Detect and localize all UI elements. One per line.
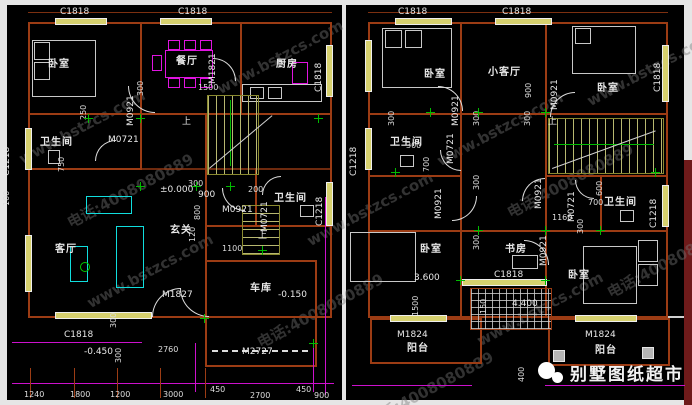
dim-label: 900 xyxy=(198,191,215,200)
wall xyxy=(545,113,547,232)
plant xyxy=(80,262,90,272)
window xyxy=(326,182,333,226)
dim-label: 100 xyxy=(3,188,11,206)
column-marker xyxy=(642,347,654,359)
toilet xyxy=(300,205,314,217)
window xyxy=(25,128,32,170)
wall xyxy=(545,22,547,115)
wall xyxy=(545,175,668,177)
window-label: C1218 xyxy=(3,136,12,176)
window xyxy=(395,18,452,25)
dim-label: 2760 xyxy=(158,346,178,354)
level-label: 4.400 xyxy=(512,300,538,309)
window-label: C1818 xyxy=(315,52,324,92)
dim-label: 900 xyxy=(314,392,329,400)
dim-label: 300 xyxy=(406,142,421,150)
window xyxy=(495,18,552,25)
window xyxy=(575,315,637,322)
window-label: C1818 xyxy=(60,8,89,17)
window-label: C1818 xyxy=(502,8,531,17)
window-label: C1218 xyxy=(350,136,359,176)
window-label: C1218 xyxy=(316,186,325,226)
dim-label: 300 xyxy=(137,76,145,96)
axis-tick xyxy=(474,108,483,117)
dimension-line xyxy=(12,383,334,384)
level-label: -0.150 xyxy=(278,291,307,300)
axis-tick xyxy=(391,168,400,177)
dim-label: 200 xyxy=(248,186,263,194)
door-label: M1824 xyxy=(585,331,616,340)
door-label: M1824 xyxy=(397,331,428,340)
staircase xyxy=(548,118,664,174)
wall xyxy=(368,113,668,115)
cabinet xyxy=(86,196,132,214)
dim-label: 300 xyxy=(110,310,118,328)
room-label-bathroom: 卫生间 xyxy=(274,194,307,204)
dim-label: 300 xyxy=(577,216,585,234)
axis-tick xyxy=(541,108,550,117)
frame-right xyxy=(684,0,692,160)
room-label-study: 书房 xyxy=(505,245,527,255)
dim-label: 800 xyxy=(194,200,202,220)
dimension-line xyxy=(12,342,142,343)
dim-label: 300 xyxy=(524,108,532,126)
frame-bottom xyxy=(0,400,692,405)
bed-pillow xyxy=(405,30,422,48)
axis-tick xyxy=(136,114,145,123)
window xyxy=(365,128,372,170)
room-label-garage: 车库 xyxy=(250,284,272,294)
stairs-up-label: 上 xyxy=(258,232,267,241)
window-label: C1218 xyxy=(650,188,659,228)
stair-arrow xyxy=(230,100,231,166)
wall xyxy=(368,175,462,177)
axis-tick xyxy=(314,114,323,123)
room-label-small-living: 小客厅 xyxy=(488,68,521,78)
dim-label: 1240 xyxy=(24,391,44,399)
dimension-line xyxy=(195,343,196,392)
window-label: C1818 xyxy=(178,8,207,17)
room-label-bathroom: 卫生间 xyxy=(604,198,637,208)
window-label: C1818 xyxy=(64,331,93,340)
right-red-bar xyxy=(684,160,692,405)
balcony-wall xyxy=(370,318,482,364)
axis-tick xyxy=(651,168,660,177)
door-label: M0721 xyxy=(447,130,456,164)
dimension-line xyxy=(352,385,472,386)
axis-tick xyxy=(456,276,465,285)
window xyxy=(462,279,547,286)
dim-label: 1800 xyxy=(70,391,90,399)
room-label-bedroom: 卧室 xyxy=(424,70,446,80)
dim-label: 1160 xyxy=(552,214,572,222)
window xyxy=(55,18,107,25)
wall xyxy=(28,168,332,170)
axis-tick xyxy=(136,182,145,191)
dim-label: 300 xyxy=(473,172,481,190)
window xyxy=(662,185,669,227)
axis-tick xyxy=(596,226,605,235)
window xyxy=(25,235,32,292)
door-label: M1827 xyxy=(162,291,193,300)
sofa xyxy=(116,226,144,288)
room-label-balcony: 阳台 xyxy=(407,344,429,354)
dining-chair xyxy=(184,78,196,88)
window xyxy=(160,18,212,25)
wall xyxy=(28,113,332,115)
window xyxy=(326,45,333,97)
room-label-kitchen: 厨房 xyxy=(276,60,298,70)
door-label: M0721 xyxy=(108,136,139,145)
dim-label: 300 xyxy=(115,345,123,363)
axis-tick xyxy=(84,114,93,123)
window-label: C1818 xyxy=(654,52,663,92)
wechat-icon xyxy=(538,362,555,379)
toilet xyxy=(620,210,634,222)
dim-label: 150 xyxy=(480,294,488,314)
room-label-dining: 餐厅 xyxy=(176,57,198,67)
room-label-bedroom: 卧室 xyxy=(420,245,442,255)
dim-label: 300 xyxy=(388,108,396,126)
room-label-living: 客厅 xyxy=(55,245,77,255)
dim-label: 750 xyxy=(58,152,66,172)
dim-label: 1100 xyxy=(222,245,242,253)
window-label: C1818 xyxy=(494,271,523,280)
door-label: M0921 xyxy=(435,185,444,219)
door-label: M0921 xyxy=(551,76,560,110)
window xyxy=(662,45,669,102)
level-label: -0.450 xyxy=(84,348,113,357)
wall xyxy=(460,230,462,318)
kitchen-sink xyxy=(268,87,282,99)
axis-tick xyxy=(474,226,483,235)
plan-divider-line xyxy=(342,0,346,405)
dim-label: 600 xyxy=(596,176,604,196)
bed-pillow xyxy=(575,28,591,44)
bed xyxy=(350,232,416,282)
bed-pillow xyxy=(34,42,50,60)
window xyxy=(390,315,447,322)
door-label: M0921 xyxy=(452,92,461,126)
door-label: M0921 xyxy=(222,206,253,215)
room-label-bedroom: 卧室 xyxy=(568,271,590,281)
room-label-balcony: 阳台 xyxy=(595,346,617,356)
toilet xyxy=(400,155,414,167)
dim-label: 900 xyxy=(525,78,533,98)
axis-tick xyxy=(541,226,550,235)
dining-chair xyxy=(168,40,180,50)
level-label: 3.600 xyxy=(414,274,440,283)
dimension-line xyxy=(325,197,326,395)
stair-arrow xyxy=(554,144,654,145)
dim-label: 1200 xyxy=(110,391,130,399)
dimension-line xyxy=(313,343,314,392)
dining-chair xyxy=(184,40,196,50)
wardrobe xyxy=(638,264,658,286)
bed-pillow xyxy=(385,30,402,48)
stairs-up-label: 上 xyxy=(548,118,557,127)
dim-label: 700 xyxy=(423,152,431,172)
axis-tick xyxy=(309,339,318,348)
door-label: M1821 xyxy=(209,48,218,84)
dimension-line xyxy=(545,385,685,386)
dim-label: 1500 xyxy=(198,84,218,92)
window xyxy=(55,312,152,319)
room-label-bedroom: 卧室 xyxy=(597,84,619,94)
column-marker xyxy=(553,350,565,362)
axis-tick xyxy=(200,314,209,323)
axis-tick xyxy=(258,246,267,255)
dim-label: 2700 xyxy=(250,392,270,400)
door-label: M0721 xyxy=(261,198,270,232)
brand-name: 别墅图纸超市 xyxy=(570,360,684,385)
dim-label: 3000 xyxy=(163,391,183,399)
room-label-bedroom: 卧室 xyxy=(48,60,70,70)
dim-label: 450 xyxy=(210,386,225,394)
axis-tick xyxy=(192,182,201,191)
axis-tick xyxy=(226,182,235,191)
dim-label: 1500 xyxy=(412,294,420,316)
wardrobe xyxy=(638,240,658,262)
dim-label: 700 xyxy=(588,199,603,207)
cad-floorplan-image: www.bstzcs.com www.bstzcs.com www.bstzcs… xyxy=(0,0,692,405)
axis-tick xyxy=(426,108,435,117)
window-label: C1818 xyxy=(398,8,427,17)
window xyxy=(365,40,372,92)
dimension-gridline xyxy=(160,368,161,398)
frame-top xyxy=(0,0,692,5)
door-label: M0921 xyxy=(535,175,544,209)
dining-chair xyxy=(152,55,162,71)
room-label-bathroom: 卫生间 xyxy=(40,138,73,148)
stairs-up-label: 上 xyxy=(182,118,191,127)
dining-chair xyxy=(168,78,180,88)
dim-label: 120 xyxy=(189,224,197,242)
dimension-gridline xyxy=(205,368,206,398)
door-label: M2727 xyxy=(242,348,273,357)
dim-label: 400 xyxy=(518,362,526,382)
door-label: M0921 xyxy=(127,92,136,126)
bed xyxy=(583,246,637,304)
door-label: M0921 xyxy=(540,232,549,266)
dim-label: 450 xyxy=(296,386,311,394)
axis-tick xyxy=(541,276,550,285)
